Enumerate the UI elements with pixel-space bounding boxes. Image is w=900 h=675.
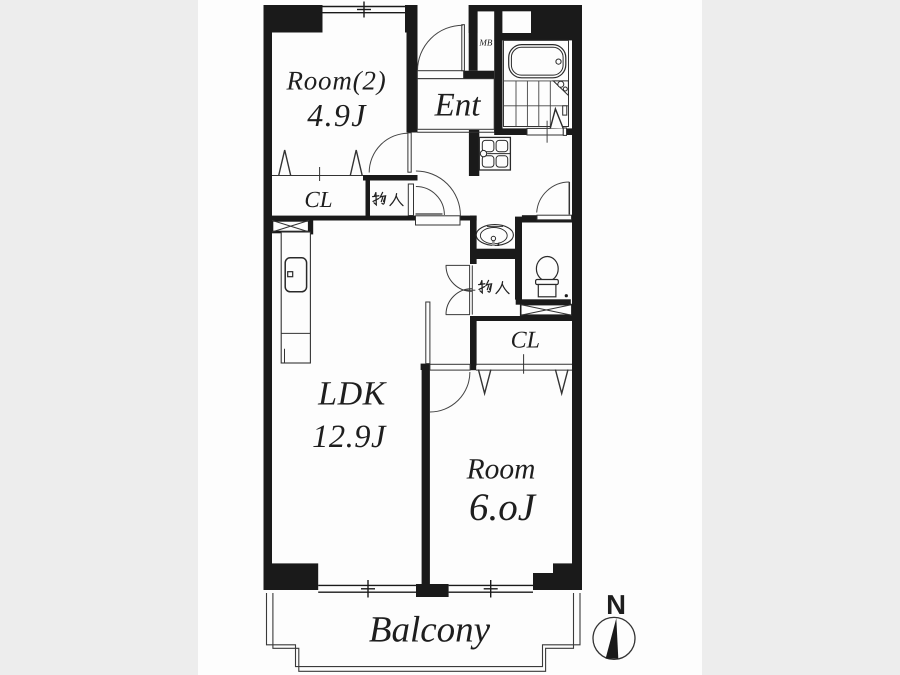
svg-text:N: N <box>606 589 626 620</box>
svg-text:6.oJ: 6.oJ <box>469 486 537 529</box>
svg-text:CL: CL <box>304 187 332 212</box>
svg-text:12.9J: 12.9J <box>312 419 387 455</box>
svg-text:LDK: LDK <box>317 376 387 413</box>
svg-text:CL: CL <box>511 328 540 354</box>
svg-text:Room: Room <box>466 453 536 485</box>
svg-text:MB: MB <box>478 38 492 48</box>
svg-text:Ent: Ent <box>434 88 482 124</box>
svg-text:Room(2): Room(2) <box>285 66 386 96</box>
svg-text:4.9J: 4.9J <box>307 97 367 133</box>
svg-text:Balcony: Balcony <box>369 610 491 651</box>
